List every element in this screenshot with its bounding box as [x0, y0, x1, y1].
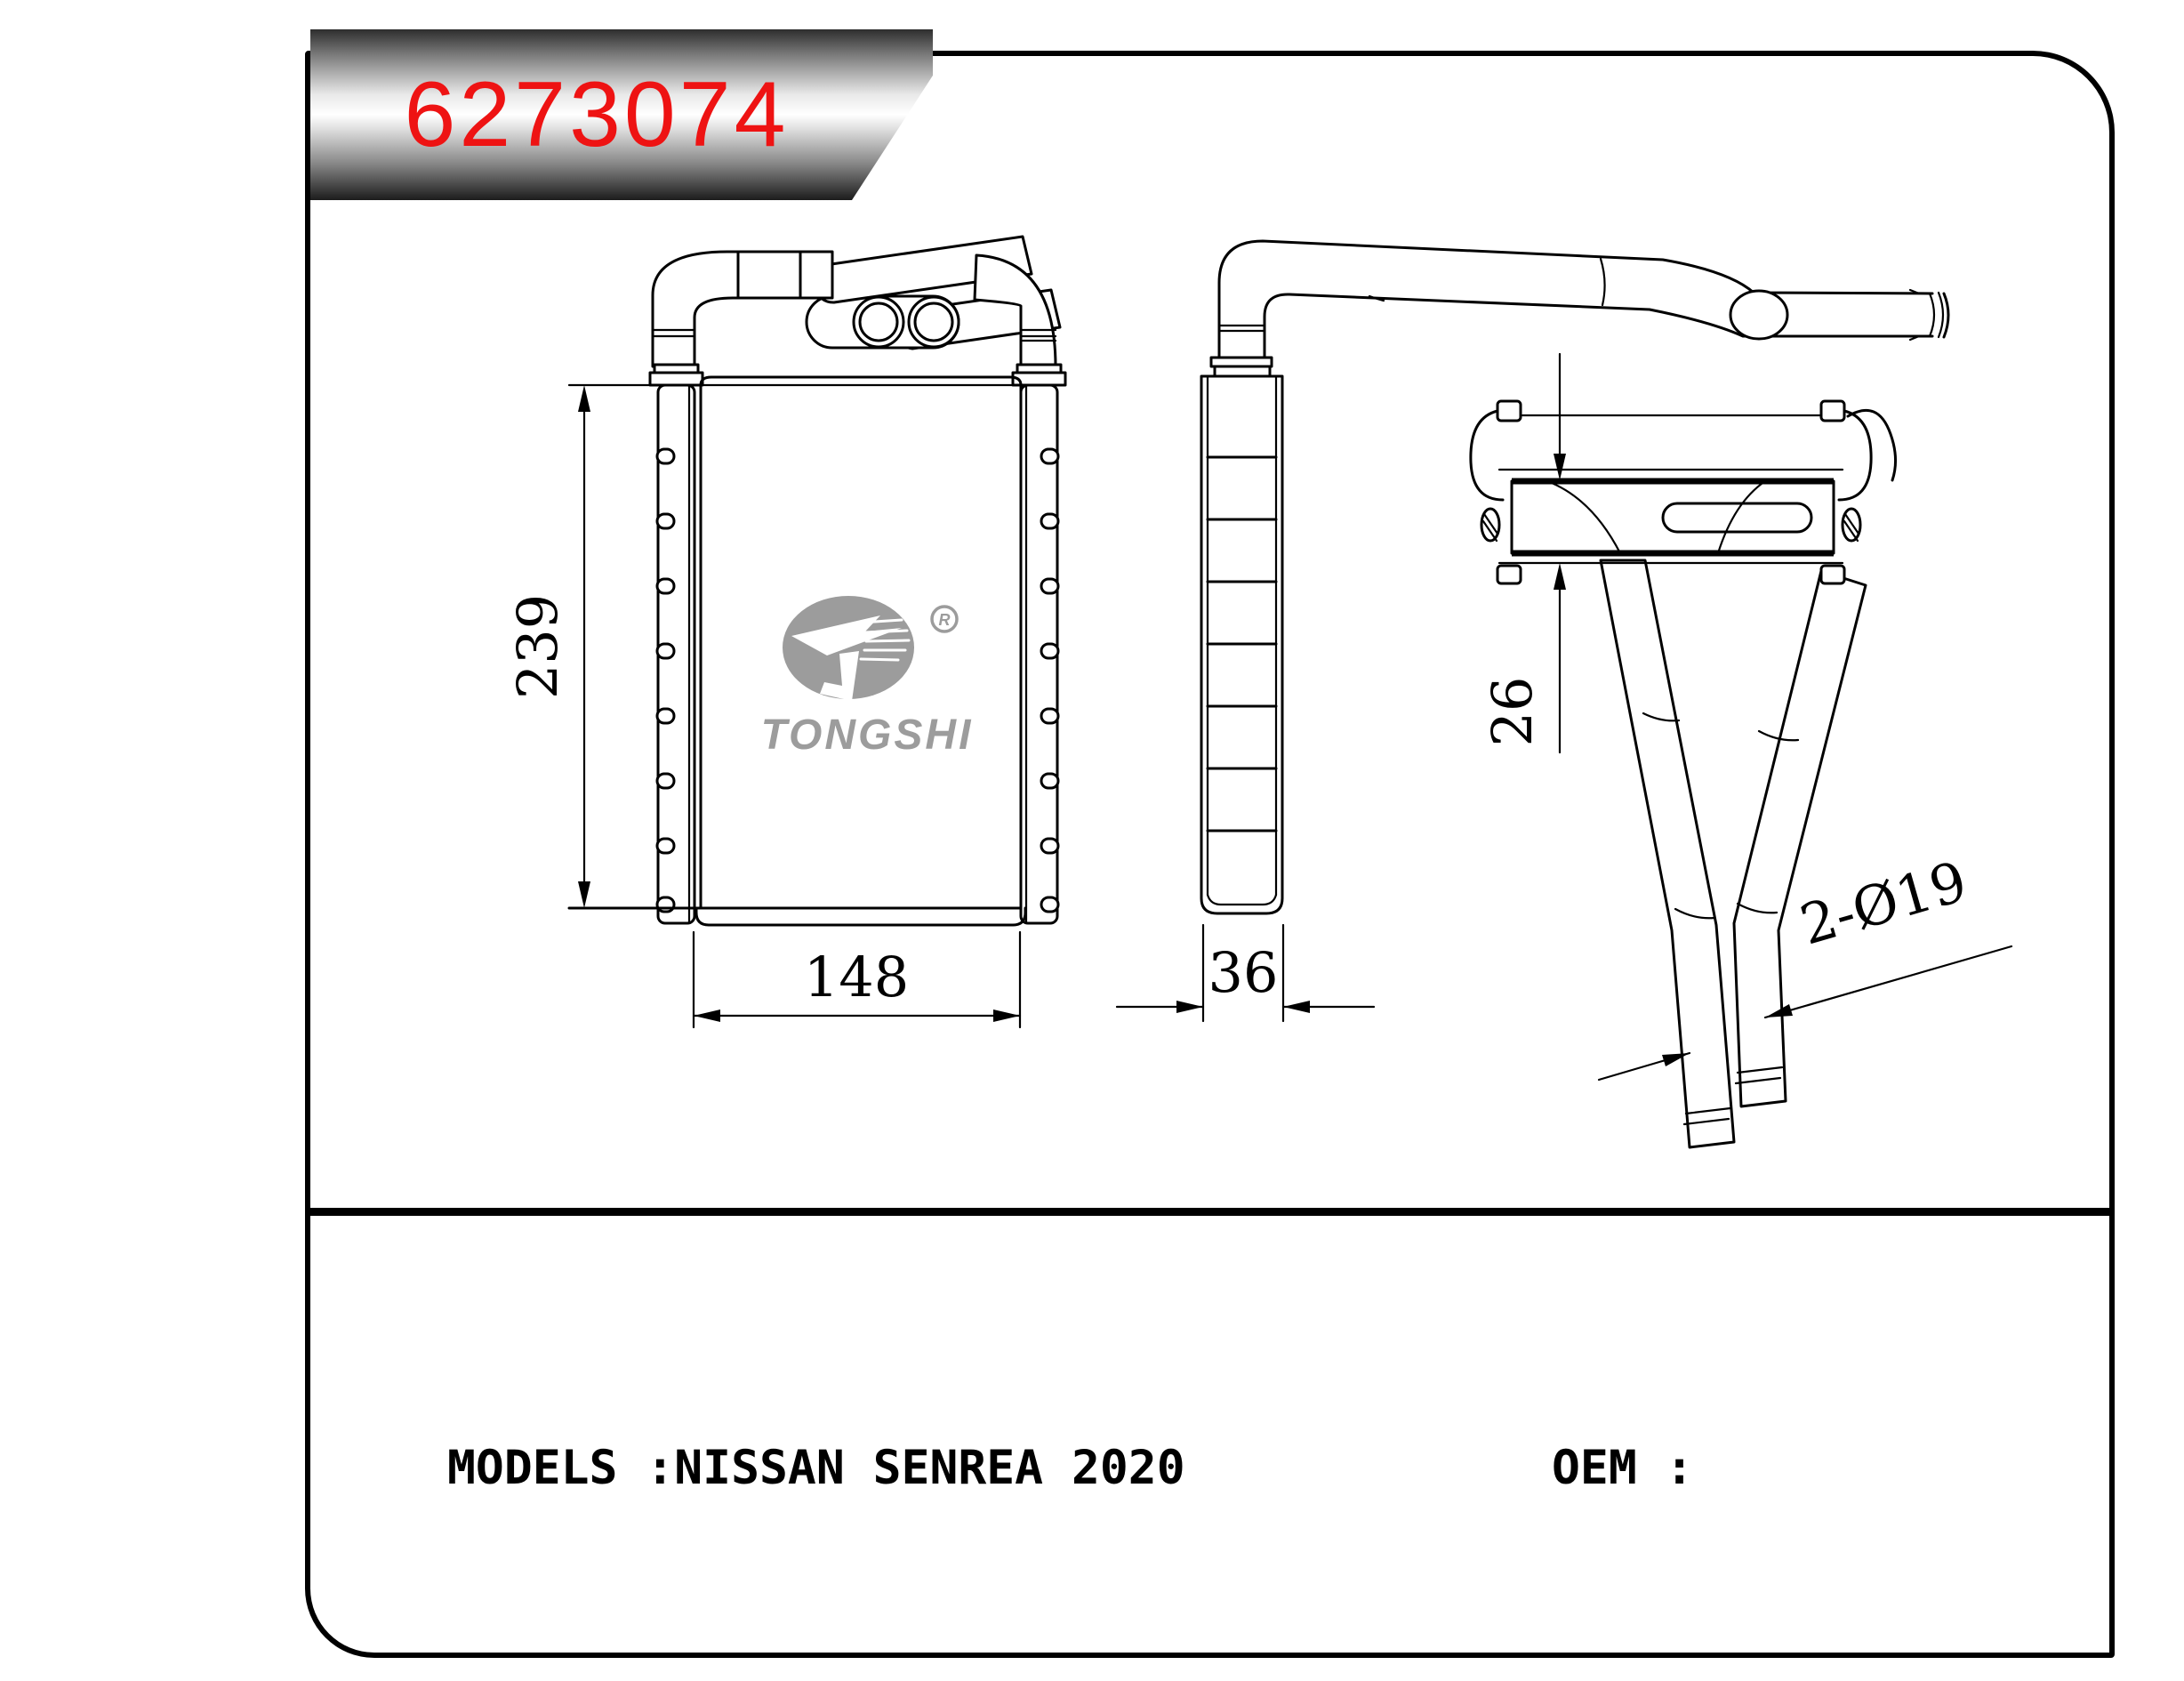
dimension-core-depth: 36 — [1117, 925, 1374, 1021]
spec-block-right: OEM : DPI : NISSENS : — [1552, 1252, 1807, 1681]
front-view: R TONGSHI 239 148 — [505, 237, 1065, 1027]
spec-oem: OEM : — [1552, 1425, 1807, 1511]
spec-block-left: MODELS :NISSAN SENREA 2020 CORE SIZE :14… — [447, 1252, 1185, 1681]
rear-bent-pipe — [1734, 571, 1866, 1106]
datasheet-page: 6273074 — [0, 0, 2184, 1681]
tank-header-assembly — [1471, 401, 1896, 583]
dim-label-148: 148 — [804, 945, 909, 1009]
right-side-tank — [1021, 385, 1058, 923]
upper-pipe-top-edge — [1219, 241, 1932, 358]
core-side-profile — [1201, 376, 1282, 913]
hose-end-cap — [1944, 294, 1948, 337]
pipe-view: 26 2-Ø19 — [1471, 354, 2011, 1147]
header-slot — [1663, 503, 1811, 532]
tank-collar — [1215, 366, 1270, 376]
dim-label-36: 36 — [1208, 940, 1279, 1005]
dim-label-2-d19: 2-Ø19 — [1794, 849, 1974, 958]
hose-nubs — [1910, 290, 1919, 340]
dimension-core-width: 148 — [694, 932, 1020, 1027]
dimension-pipe-diameter: 2-Ø19 — [1599, 849, 2011, 1080]
logo-text: TONGSHI — [761, 712, 974, 759]
spec-models: MODELS :NISSAN SENREA 2020 — [447, 1425, 1185, 1511]
brand-logo: R TONGSHI — [761, 596, 974, 759]
dim-label-239: 239 — [505, 594, 570, 699]
left-collar — [650, 373, 703, 385]
upper-pipe-bottom-edge — [1265, 294, 1932, 358]
outlet-port — [909, 297, 959, 347]
hose-end-rings — [1930, 293, 1943, 337]
weld-lines — [1219, 326, 1265, 331]
dimension-core-height: 239 — [505, 385, 590, 908]
inlet-port — [854, 297, 903, 347]
dim-label-26: 26 — [1480, 677, 1545, 747]
left-arch-pipe — [653, 252, 832, 366]
pipe-bend-joint — [1730, 291, 1787, 339]
registered-mark-letter: R — [939, 611, 951, 629]
left-side-tank — [657, 385, 695, 923]
